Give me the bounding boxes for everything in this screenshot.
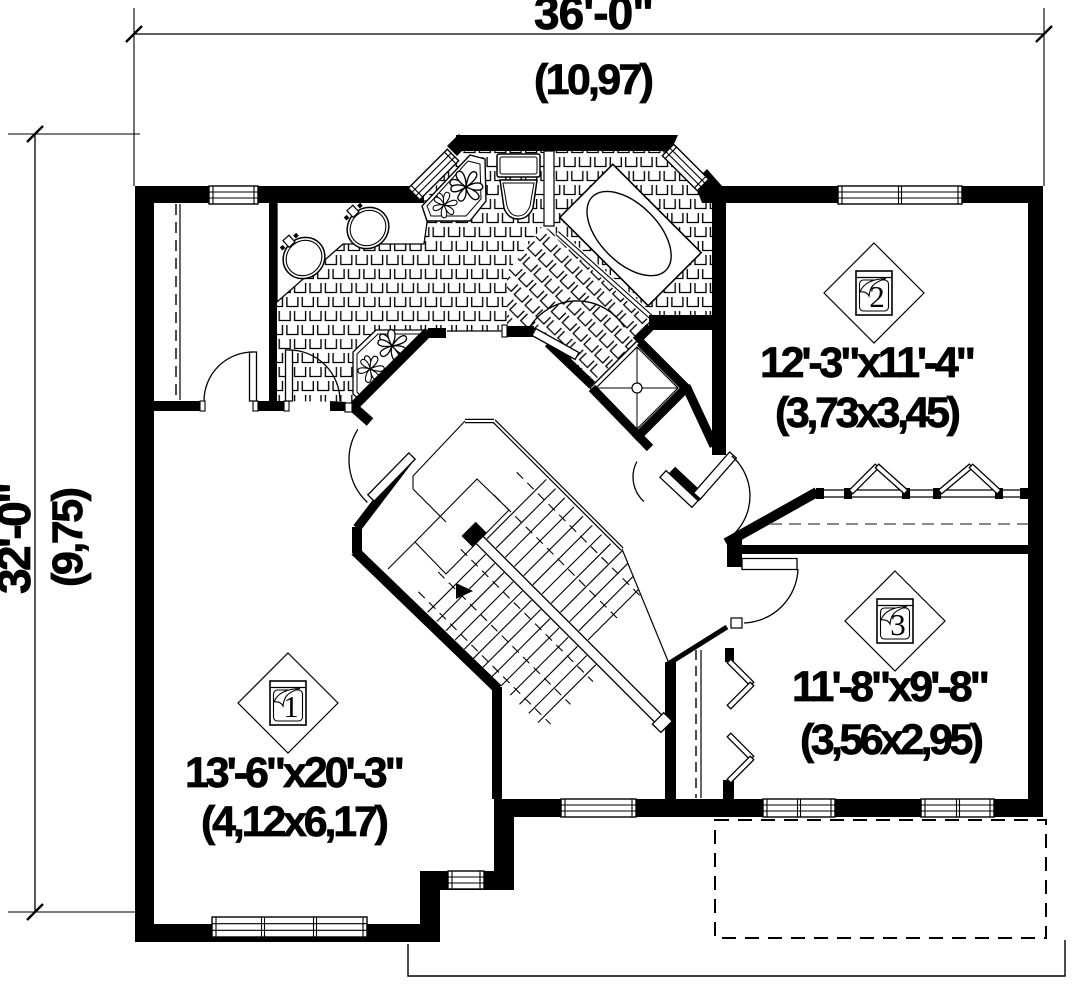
svg-text:32'-0": 32'-0" [0, 482, 40, 594]
svg-text:36'-0": 36'-0" [534, 0, 654, 39]
svg-text:11'-8"x9'-8": 11'-8"x9'-8" [792, 663, 990, 711]
svg-text:(3,56x2,95): (3,56x2,95) [800, 716, 984, 764]
svg-text:12'-3"x11'-4": 12'-3"x11'-4" [760, 339, 976, 387]
svg-text:13'-6"x20'-3": 13'-6"x20'-3" [185, 749, 405, 797]
svg-text:(3,73x3,45): (3,73x3,45) [775, 389, 961, 437]
svg-text:(9,75): (9,75) [44, 487, 92, 587]
svg-text:(10,97): (10,97) [534, 56, 654, 104]
svg-text:(4,12x6,17): (4,12x6,17) [201, 798, 389, 846]
